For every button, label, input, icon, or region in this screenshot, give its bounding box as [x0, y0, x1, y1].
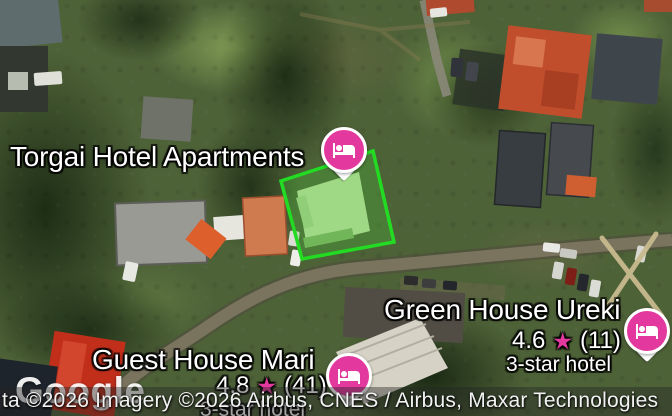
- hotel-pin-torgai[interactable]: [321, 127, 367, 173]
- dirt-trail: [300, 14, 470, 60]
- map-canvas[interactable]: Torgai Hotel Apartments Green House Urek…: [0, 0, 672, 416]
- rating-ureki[interactable]: 4.6★(11): [512, 327, 621, 355]
- attribution-text: ta ©2026 Imagery ©2026 Airbus, CNES / Ai…: [2, 389, 658, 413]
- bed-icon: [332, 138, 356, 162]
- place-label-ureki[interactable]: Green House Ureki: [384, 294, 620, 326]
- star-icon: ★: [552, 330, 573, 353]
- pin-circle: [624, 308, 670, 354]
- bed-icon: [337, 364, 361, 388]
- place-label-torgai[interactable]: Torgai Hotel Apartments: [10, 141, 304, 173]
- bed-icon: [635, 319, 659, 343]
- review-count: (11): [580, 327, 621, 355]
- rating-value: 4.6: [512, 327, 545, 355]
- hotel-pin-ureki[interactable]: [624, 308, 670, 354]
- pin-circle: [321, 127, 367, 173]
- category-ureki: 3-star hotel: [506, 353, 611, 377]
